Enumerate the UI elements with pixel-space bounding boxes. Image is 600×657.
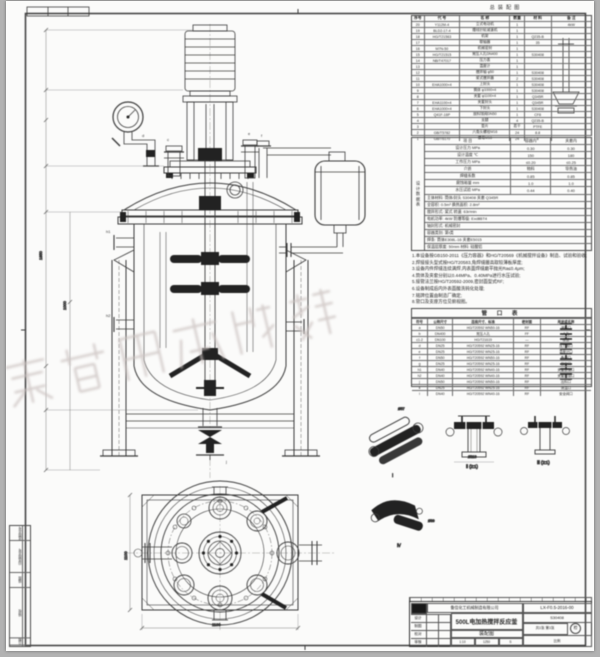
approval-cell: 比例	[523, 635, 592, 648]
tech-requirement-line: 1.本设备按GB150-2011《压力容器》和HG/T20569《机械搅拌设备》…	[412, 253, 591, 260]
drawing-sheet: 1850 1000 d c e f h1 h2 j	[0, 0, 600, 657]
watermark-glyphs	[6, 287, 339, 407]
signature-row: 制图	[411, 622, 451, 630]
design-data-line: 电机功率: 4kW 防爆等级: ExdⅡBT4	[425, 215, 591, 222]
tech-requirement-line: 4.筒体及夹套分别以0.44MPa、0.40MPa进行水压试验;	[412, 273, 591, 280]
detail-1-caption: Ⅰ	[392, 473, 393, 478]
design-data-row: 设计压力 MPa 0.30 0.30	[425, 144, 591, 151]
front-view-reactor: 1850 1000 d c e f h1 h2 j	[38, 24, 365, 478]
design-data-row: 腐蚀裕量 mm 1.0 1.0	[425, 179, 591, 186]
svg-text:c: c	[167, 137, 169, 142]
mass-cell: 1250	[475, 638, 499, 648]
nozzle-row: l DN40 HG/T20592 WN40-16 RF 安全阀口	[412, 390, 591, 396]
design-data-row: 介质 物料 导热油	[425, 165, 591, 172]
tech-requirement-line: 2.焊接接头型式按HG/T20583,角焊缝腰高取较薄板厚度;	[412, 260, 591, 267]
svg-text:j: j	[225, 459, 227, 464]
dim-plan-height: 1100	[123, 551, 128, 560]
bottom-outlet-valve	[196, 408, 224, 460]
paper: 1850 1000 d c e f h1 h2 j	[6, 1, 594, 651]
design-data-line: 容器类别: 第Ⅰ类	[425, 229, 591, 236]
design-data-line: 搅拌形式: 桨式 转速: 63r/min	[425, 208, 591, 215]
svg-text:h2: h2	[106, 313, 111, 318]
tech-requirement-line: 8.管口及支座方位见俯视图。	[412, 299, 591, 306]
design-table-title: 设计数据表	[412, 138, 425, 250]
tech-requirement-line: 3.设备内件焊缝连续满焊,内表面焊缝磨平抛光Ra≤0.4μm;	[412, 266, 591, 273]
dim-front-height: 1850	[38, 250, 43, 260]
detail-3-nozzle-section	[521, 416, 570, 454]
detail-4-isometric	[368, 493, 428, 537]
nozzle-table-title: 管 口 表	[412, 309, 591, 318]
drawing-content: 1850 1000 d c e f h1 h2 j	[6, 1, 594, 651]
svg-text:h1: h1	[106, 229, 111, 234]
company-name: 鲁信化工机械制造有限公司	[427, 603, 523, 613]
tech-requirement-line: 5.接管法兰按HG/T20592-2009,密封面型式RF;	[412, 279, 591, 286]
signature-rows: 设计 制图 校对 审核	[411, 614, 451, 647]
sheet-cell: 共1张 第1张	[523, 623, 568, 635]
doc-label: 总装配图	[458, 2, 554, 12]
binding-strip: 底图总号旧底图总号描图描校日期	[9, 525, 31, 647]
material-cell: S30408	[523, 613, 592, 623]
svg-text:d: d	[142, 133, 144, 138]
detail-3-caption: Ⅲ (2:1)	[537, 460, 550, 465]
tech-requirement-line: 7.铭牌位置由制造厂确定;	[412, 293, 591, 300]
head-nozzles	[164, 140, 259, 352]
detail-4-dim: Ø89	[428, 519, 435, 523]
design-data-row: 工作压力 MPa ≤0.20 ≤0.25	[425, 158, 591, 165]
design-data-line: 轴封形式: 机械密封	[425, 222, 591, 229]
signature-row: 校对	[411, 630, 451, 638]
company-logo	[411, 603, 427, 614]
dim-shell-height: 1000	[62, 300, 67, 310]
design-data-line: 焊条: 筒体E308L-16 夹套E5015	[425, 236, 591, 243]
dim-plan-width: 1100	[212, 622, 221, 627]
stamp-circle: 检	[570, 623, 581, 634]
binding-strip-row: 旧底图总号	[10, 541, 30, 573]
pressure-gauge	[112, 102, 159, 166]
parts-list-table: 序号 代 号 名 称 数量 材 料 备 注 20 Y112M-4 立式电动机 1…	[411, 15, 592, 136]
design-data-row: 焊缝系数 0.85 0.85	[425, 172, 591, 179]
svg-text:f: f	[261, 133, 263, 138]
detail-1-dim: Ø57	[398, 407, 405, 411]
binding-strip-row: 描校	[10, 588, 30, 638]
side-condenser	[255, 141, 365, 257]
front-dimensions	[44, 28, 198, 472]
svg-text:e: e	[248, 131, 251, 136]
drawing-type: 装配图	[451, 630, 523, 638]
binding-strip-row: 底图总号	[10, 526, 30, 541]
stage-cell: S	[499, 638, 523, 648]
technical-requirements: 1.本设备按GB150-2011《压力容器》和HG/T20569《机械搅拌设备》…	[412, 253, 591, 306]
detail-2-dim: Ø219	[468, 455, 477, 459]
tech-requirement-line: 6.设备制成后内外表面酸洗钝化处理;	[412, 286, 591, 293]
plan-view: 1100 1100	[123, 481, 334, 630]
design-data-line: 全容积: 0.5m³ 换热面积: 2.8m²	[425, 201, 591, 208]
product-title: 500L电加热搅拌反应釜	[451, 613, 523, 630]
detail-4-caption: Ⅳ	[397, 543, 401, 548]
design-data-row: 设计温度 ℃ 150 180	[425, 151, 591, 158]
signature-row: 设计	[411, 614, 451, 622]
detail-2-caption: Ⅱ (2:1)	[466, 464, 478, 469]
nozzle-table: 管 口 表 符号 公称尺寸 连接尺寸、标准 密封面 用途或名称 a DN50 H…	[411, 308, 592, 387]
scale-cell: 1:10	[451, 638, 475, 648]
signature-row: 审核	[411, 638, 451, 646]
title-block: 鲁信化工机械制造有限公司 LX-F0.5-2016-00 设计 制图 校对 审核…	[409, 601, 592, 647]
plan-nozzles	[134, 487, 322, 620]
design-data-line: 保温层厚度: 50mm 材料: 硅酸铝	[425, 243, 591, 250]
design-data-row: 水压试验 MPa 0.44 0.40	[425, 186, 591, 193]
design-data-line: 主体材料: 筒体/封头 S30408 夹套 Q345R	[425, 194, 591, 201]
detail-1-isometric	[362, 412, 430, 468]
design-data-table: 设计数据表 项 目 容器内 夹套内 设计压力 MPa 0.30 0.30 设计温…	[411, 137, 592, 251]
binding-strip-row: 日期	[10, 638, 30, 646]
binding-strip-row: 描图	[10, 573, 30, 588]
drawing-code: LX-F0.5-2016-00	[523, 603, 592, 613]
